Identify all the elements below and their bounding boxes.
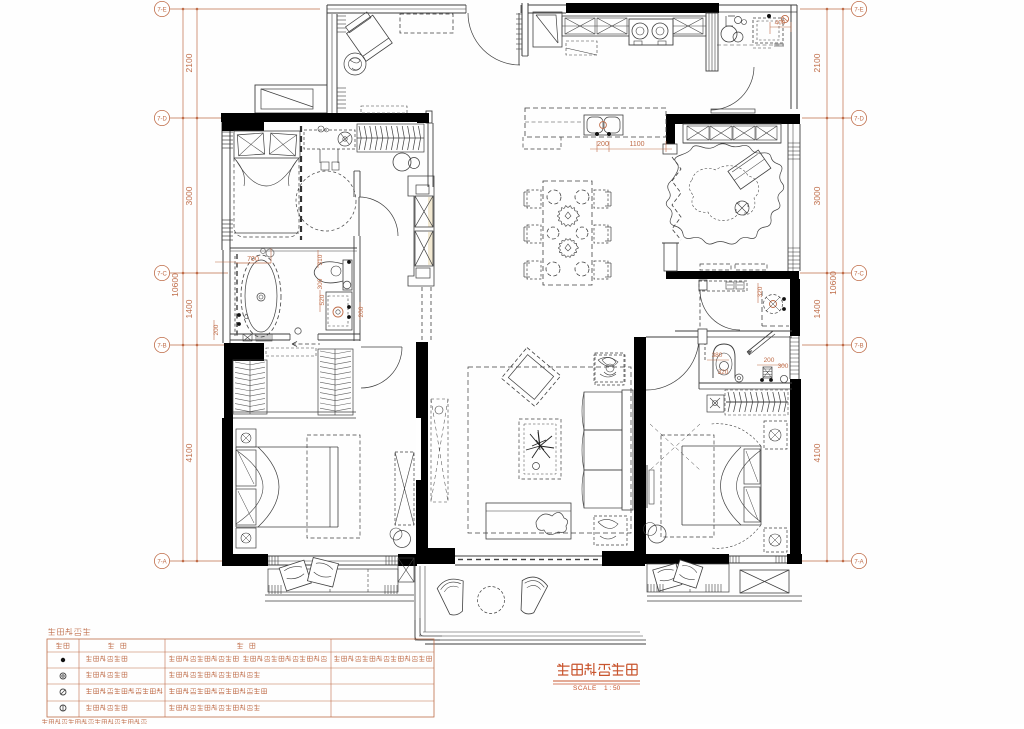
svg-text:300: 300 (778, 363, 789, 370)
svg-text:380: 380 (712, 352, 723, 359)
svg-text:1400: 1400 (184, 299, 194, 318)
svg-text:7-D: 7-D (157, 116, 167, 122)
svg-text:7-E: 7-E (854, 7, 863, 13)
svg-text:4100: 4100 (812, 443, 822, 462)
svg-text:2100: 2100 (184, 53, 194, 72)
svg-text:1400: 1400 (812, 299, 822, 318)
svg-text:7-E: 7-E (157, 7, 166, 13)
svg-text:320: 320 (718, 369, 729, 376)
svg-text:700: 700 (247, 256, 259, 263)
svg-text:SCALE: SCALE (573, 685, 597, 692)
svg-text:1 : 50: 1 : 50 (604, 685, 621, 692)
svg-text:7-B: 7-B (854, 343, 863, 349)
svg-text:1100: 1100 (629, 141, 644, 148)
svg-text:10600: 10600 (828, 271, 838, 295)
svg-text:7-D: 7-D (854, 116, 864, 122)
svg-text:7-B: 7-B (157, 343, 166, 349)
svg-text:400: 400 (775, 20, 786, 27)
svg-text:7-C: 7-C (854, 271, 864, 277)
svg-text:3000: 3000 (812, 186, 822, 205)
svg-text:3000: 3000 (184, 186, 194, 205)
svg-text:300: 300 (317, 278, 324, 289)
svg-text:7-A: 7-A (854, 559, 863, 565)
svg-text:7-C: 7-C (157, 271, 167, 277)
svg-text:2100: 2100 (812, 53, 822, 72)
svg-text:200: 200 (358, 306, 365, 317)
svg-text:200: 200 (597, 141, 609, 148)
svg-text:4100: 4100 (184, 443, 194, 462)
svg-text:200: 200 (764, 357, 775, 364)
svg-text:10600: 10600 (170, 273, 180, 297)
svg-text:7-A: 7-A (157, 559, 166, 565)
